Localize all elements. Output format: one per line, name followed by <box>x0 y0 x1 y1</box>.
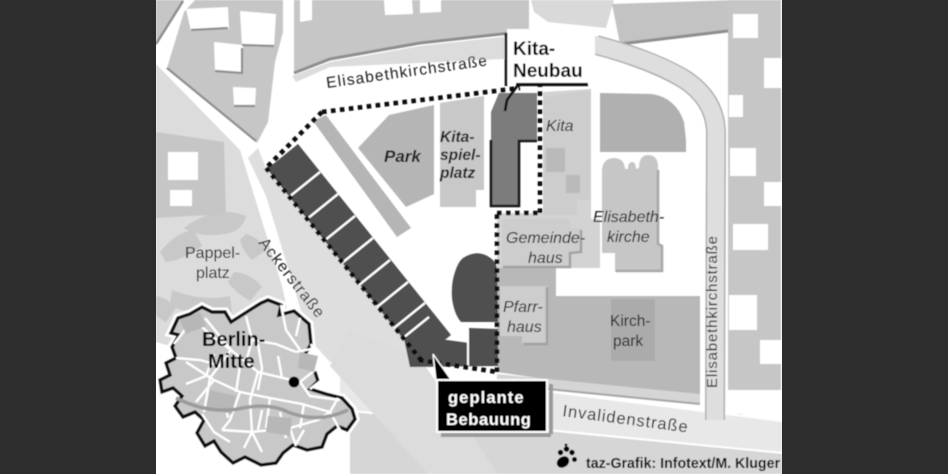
svg-text:Berlin-: Berlin- <box>202 329 265 351</box>
svg-text:Kita: Kita <box>546 118 574 135</box>
svg-text:park: park <box>613 333 643 350</box>
svg-text:Park: Park <box>384 147 422 166</box>
svg-text:Neubau: Neubau <box>513 61 583 82</box>
svg-text:spiel-: spiel- <box>440 147 480 164</box>
svg-text:Kita-: Kita- <box>440 129 474 146</box>
svg-text:platz: platz <box>196 265 230 282</box>
svg-text:geplante: geplante <box>448 389 525 407</box>
svg-text:taz-Grafik: Infotext/M. Kluger: taz-Grafik: Infotext/M. Kluger <box>586 456 780 472</box>
svg-text:haus: haus <box>507 319 542 336</box>
svg-text:Bebauung: Bebauung <box>446 411 531 429</box>
svg-text:Pfarr-: Pfarr- <box>503 299 543 316</box>
svg-text:Kirch-: Kirch- <box>610 313 650 330</box>
svg-text:Mitte: Mitte <box>208 351 255 373</box>
svg-text:Gemeinde-: Gemeinde- <box>506 230 585 247</box>
svg-text:Elisabeth-: Elisabeth- <box>593 209 664 226</box>
svg-text:Kita-: Kita- <box>513 39 555 60</box>
svg-text:Pappel-: Pappel- <box>185 245 240 262</box>
svg-text:platz: platz <box>439 165 476 182</box>
svg-text:Elisabethkirchstraße: Elisabethkirchstraße <box>704 236 721 388</box>
svg-text:kirche: kirche <box>607 229 650 246</box>
svg-text:haus: haus <box>528 250 563 267</box>
